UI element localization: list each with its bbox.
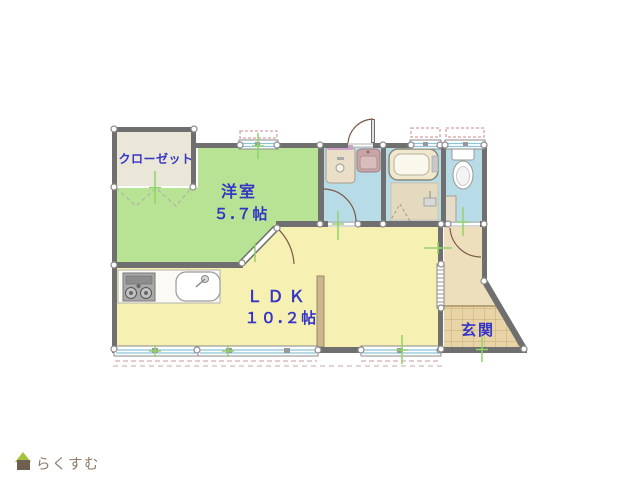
logo: らくすむ (15, 452, 100, 473)
window-handle (463, 142, 468, 146)
bath-faucet (432, 156, 438, 172)
ldk-partition-counter (317, 276, 324, 347)
window-projection-dashed (411, 128, 440, 137)
window-handle (284, 348, 290, 353)
western-room-label: 洋室 (221, 182, 257, 201)
stove-control-panel (126, 276, 152, 284)
window-handle (423, 142, 428, 146)
washroom-exterior-door (348, 119, 373, 143)
logo-text: らくすむ (36, 456, 100, 473)
ldk-window-center (198, 346, 318, 356)
door-swing-arc (348, 119, 373, 143)
kitchen-sink (176, 272, 220, 301)
entrance-label: 玄関 (461, 321, 495, 339)
ldk-label: ＬＤＫ (246, 287, 309, 306)
toilet-window (445, 128, 485, 149)
washbasin-tap (337, 157, 344, 160)
ldk-hallway-sliding-door (437, 264, 444, 308)
window-projection-dashed (446, 128, 484, 137)
stove-center-knob (137, 284, 141, 288)
stove-burner-left-center (129, 291, 133, 295)
bathroom-window (410, 128, 441, 149)
logo-house-body-icon (17, 460, 30, 470)
toilet-seat (457, 167, 470, 186)
ldk-size: １０.２帖 (244, 309, 317, 327)
toilet-tank (452, 148, 474, 160)
stove-burner-right-center (144, 291, 148, 295)
closet-label: クローゼット (118, 151, 193, 166)
bathtub-inner (394, 154, 429, 175)
washing-machine-lid (360, 156, 377, 169)
floor-plan: クローゼット 洋室 ５.７帖 ＬＤＫ １０.２帖 玄関 らくすむ (0, 0, 640, 480)
western-room-size: ５.７帖 (214, 205, 269, 223)
washing-machine-knob (367, 151, 370, 154)
washbasin-drain (336, 164, 344, 172)
ldk-window-right (361, 346, 441, 356)
shower-fixture (424, 198, 436, 206)
